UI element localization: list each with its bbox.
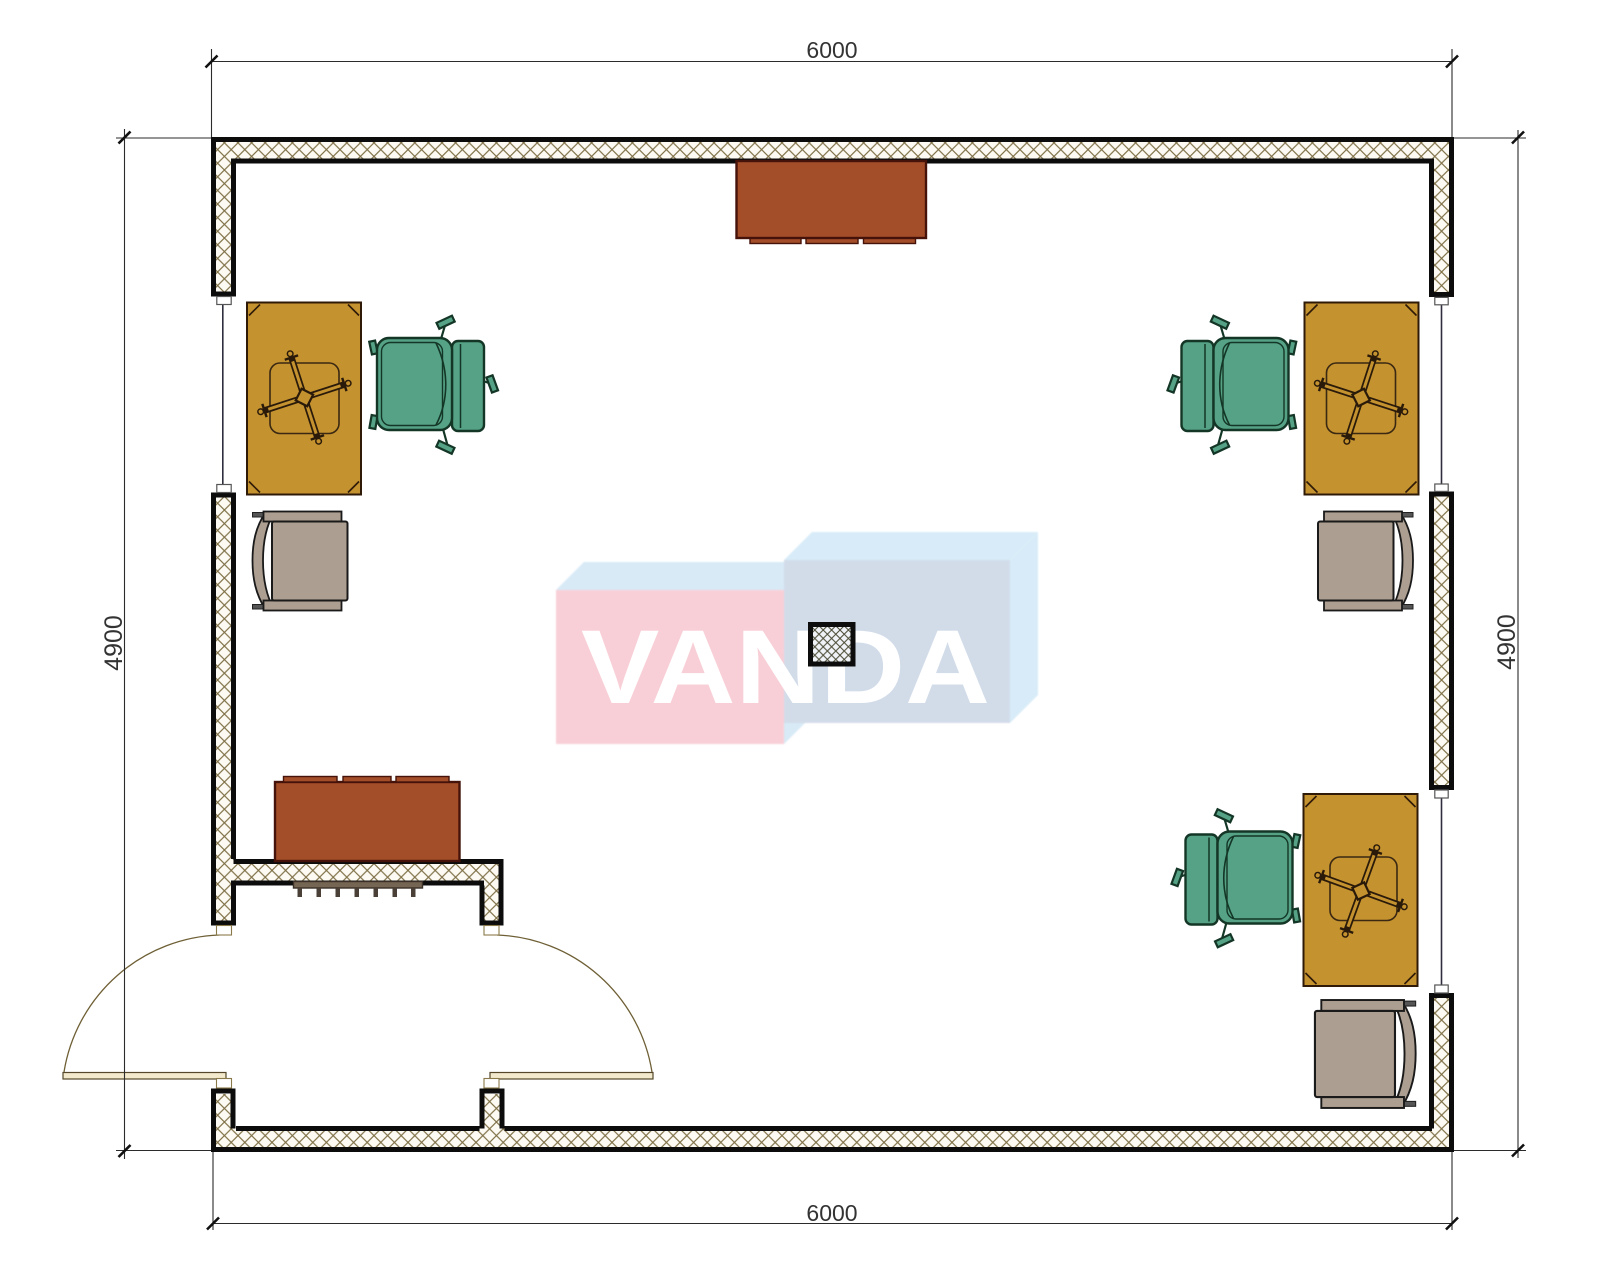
svg-text:VANDA: VANDA [581, 609, 990, 726]
svg-text:4900: 4900 [1493, 614, 1521, 670]
svg-text:6000: 6000 [806, 37, 857, 63]
svg-text:6000: 6000 [806, 1200, 857, 1226]
svg-text:4900: 4900 [100, 615, 128, 671]
